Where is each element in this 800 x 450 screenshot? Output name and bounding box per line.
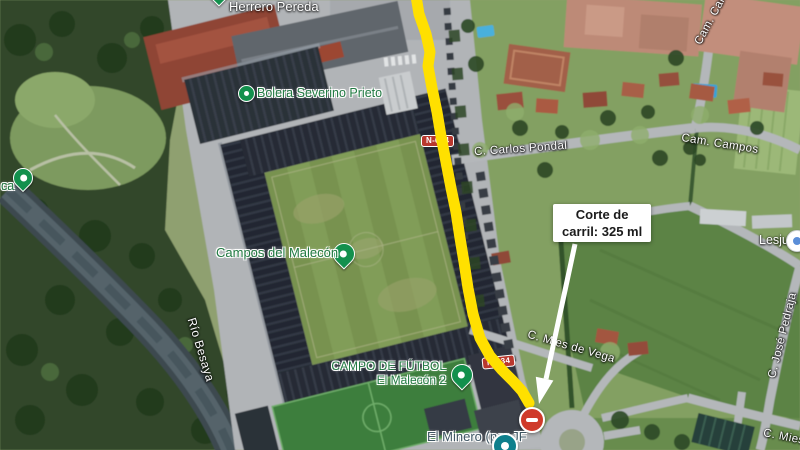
road-shield-n634-top: N-634 (421, 135, 454, 147)
map-viewport[interactable]: N-634 N-634 C. Carlos Pondal Cam. Campos… (0, 0, 800, 450)
poi-label-bolera-severino-prieto[interactable]: Bolera Severino Prieto (257, 86, 382, 100)
callout-line2: carril: 325 ml (562, 223, 642, 240)
poi-label-left-partial[interactable]: ca (1, 179, 14, 193)
map-dot-bolera[interactable] (238, 85, 255, 102)
poi-label-herrero-pereda[interactable]: Herrero Pereda (229, 0, 319, 14)
poi-label-el-malecon-2[interactable]: CAMPO DE FÚTBOL El Malecón 2 (326, 359, 446, 387)
callout-line1: Corte de (562, 206, 642, 223)
annotation-callout[interactable]: Corte de carril: 325 ml (553, 204, 651, 242)
poi-label-el-malecon-2-line2: El Malecón 2 (326, 373, 446, 387)
poi-label-el-malecon-2-line1: CAMPO DE FÚTBOL (326, 359, 446, 373)
poi-label-campos-del-malecon[interactable]: Campos del Malecón (216, 245, 338, 260)
